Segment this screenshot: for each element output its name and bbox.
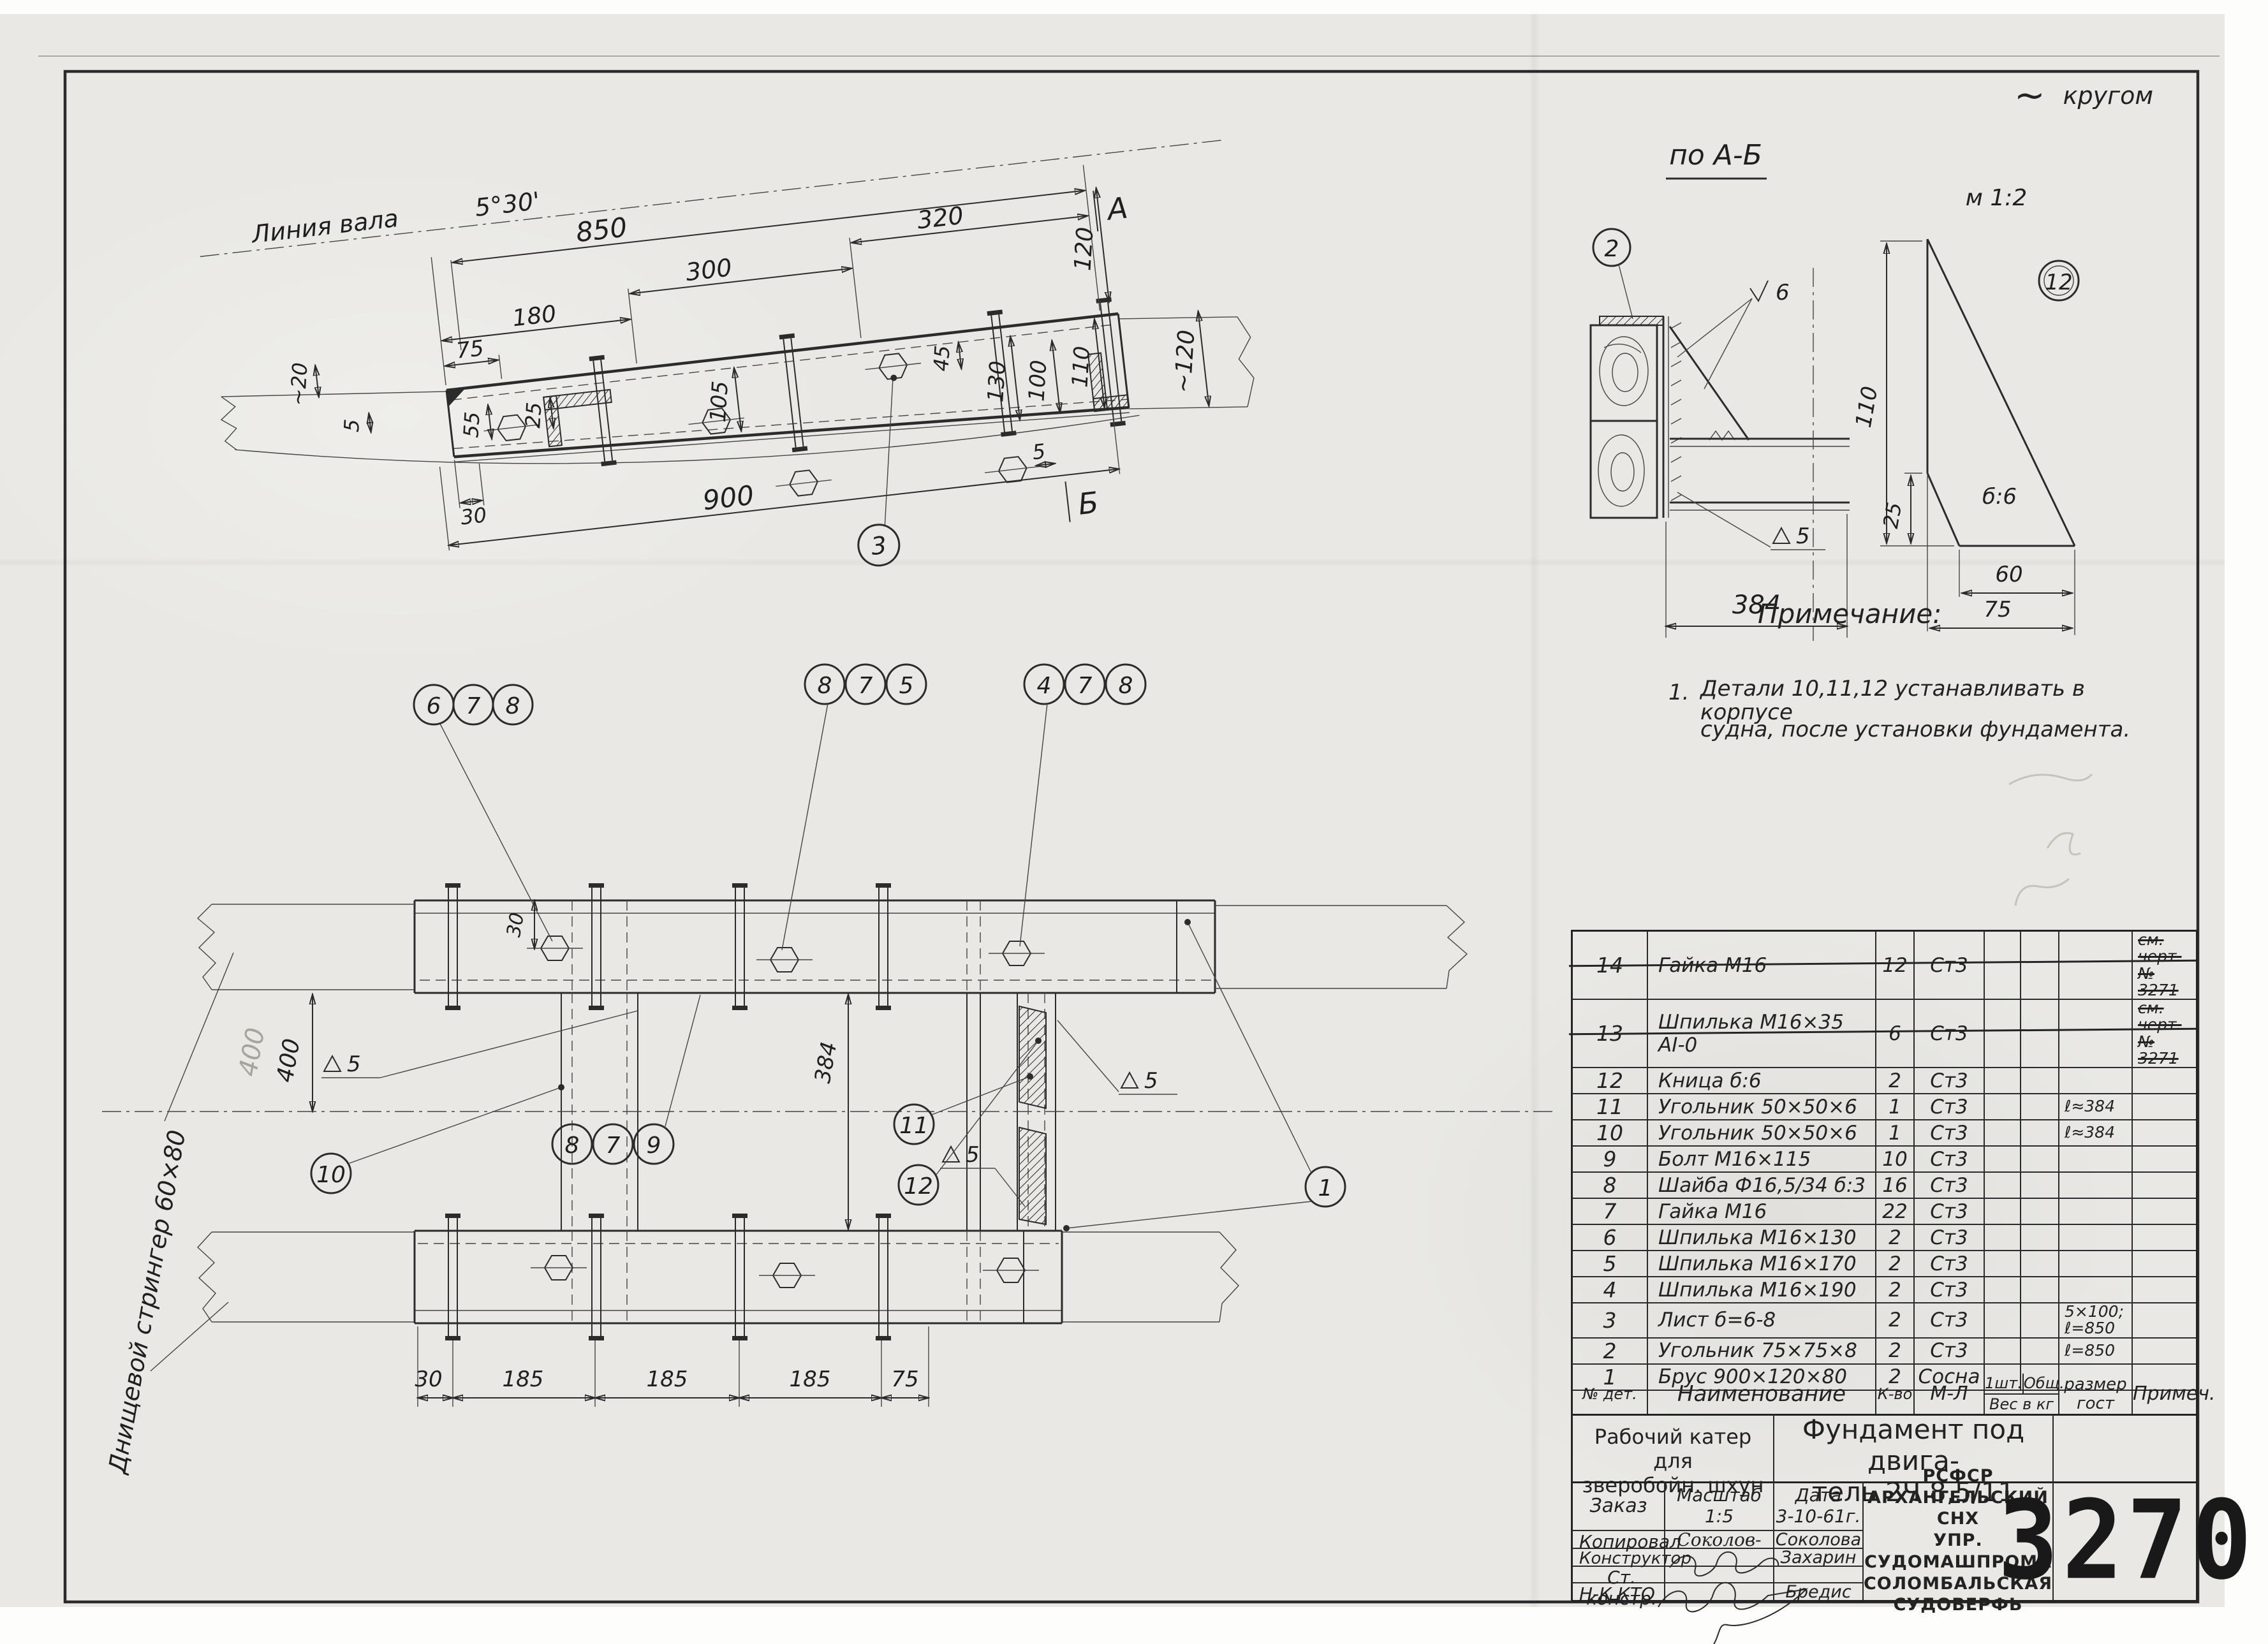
part-qty: 2 — [1876, 1277, 1915, 1302]
table-row: 14Гайка М1612Ст3см. черт.№ 3271 — [1573, 932, 2196, 1000]
balloon-trio-879: 8 7 9 — [552, 995, 700, 1164]
part-material: Ст3 — [1915, 1094, 1985, 1119]
note-number: 1. — [1668, 681, 1689, 705]
part-note — [2133, 1094, 2196, 1119]
svg-text:60: 60 — [1995, 562, 2022, 587]
svg-text:10: 10 — [316, 1162, 346, 1188]
part-name: Болт М16×115 — [1648, 1147, 1876, 1171]
svg-text:9: 9 — [647, 1133, 661, 1159]
stud — [589, 883, 604, 1010]
svg-text:120: 120 — [1070, 226, 1098, 272]
part-weight-each — [1985, 1199, 2021, 1224]
col-num: № дет. — [1573, 1374, 1648, 1414]
part-material: Ст3 — [1915, 1339, 1985, 1363]
table-row: 10Угольник 50×50×61Ст3ℓ≈384 — [1573, 1120, 2196, 1147]
table-row: 6Шпилька М16×1302Ст3 — [1573, 1225, 2196, 1251]
dim-900: 900 — [701, 480, 755, 517]
part-weight-total — [2021, 1277, 2059, 1302]
part-qty: 2 — [1876, 1225, 1915, 1250]
parts-table-header: № дет. Наименование К-во М-Л 1шт. Общ. В… — [1573, 1374, 2196, 1416]
thickness-label: б:6 — [1982, 484, 2017, 510]
part-num: 8 — [1573, 1173, 1648, 1198]
part-note — [2133, 1068, 2196, 1093]
part-name: Шпилька М16×190 — [1648, 1277, 1876, 1302]
svg-text:5: 5 — [966, 1142, 980, 1168]
weld-mark-d5: 5 — [1057, 1020, 1177, 1094]
svg-text:850: 850 — [574, 211, 628, 248]
order-label: Заказ — [1573, 1481, 1665, 1531]
dim-384: 384 — [810, 1040, 843, 1085]
weld-all-around-note: ~кругом — [2014, 75, 2153, 116]
dims-vertical: 120 ~120 110 100 130 45 105 25 55 ~20 5 — [272, 178, 1209, 510]
balloon-trio-678: 6 7 8 — [414, 685, 552, 941]
part-material: Ст3 — [1915, 1225, 1985, 1250]
sig-label: Ст. констр. — [1573, 1567, 1665, 1583]
svg-text:8: 8 — [1119, 673, 1133, 699]
part-size — [2059, 1147, 2133, 1171]
part-size — [2059, 932, 2133, 999]
part-weight-total — [2021, 1120, 2059, 1145]
part-num: 5 — [1573, 1251, 1648, 1276]
pencil-scribble — [2009, 774, 2092, 784]
svg-text:110: 110 — [1067, 346, 1095, 388]
part-material: Ст3 — [1915, 1251, 1985, 1276]
scale-cell: Масштаб 1:5 — [1665, 1481, 1774, 1531]
weld-mark-d5: 5 — [321, 1011, 638, 1078]
date-cell: Дата 3-10-61г. — [1774, 1481, 1864, 1531]
knee-bracket — [1019, 1006, 1046, 1108]
sig-name: Захарин — [1774, 1549, 1864, 1567]
part-name: Лист б=6-8 — [1648, 1303, 1876, 1337]
part-material: Ст3 — [1915, 1120, 1985, 1145]
svg-text:45: 45 — [929, 344, 954, 372]
svg-text:25: 25 — [520, 401, 546, 429]
part-size — [2059, 1225, 2133, 1250]
part-size: ℓ≈384 — [2059, 1094, 2133, 1119]
part-num: 11 — [1573, 1094, 1648, 1119]
svg-text:55: 55 — [459, 411, 484, 438]
detail-scale: м 1:2 — [1966, 185, 2028, 211]
part-name: Кница б:6 — [1648, 1068, 1876, 1093]
tilde-symbol: ~ — [2014, 73, 2045, 117]
part-size — [2059, 1277, 2133, 1302]
balloon-11: 11 — [894, 1073, 1033, 1144]
break-zigzag-right — [1234, 316, 1258, 407]
part-material: Ст3 — [1915, 1068, 1985, 1093]
part-weight-each — [1985, 1339, 2021, 1363]
part-note — [2133, 1173, 2196, 1198]
shaft-angle: 5°30' — [473, 187, 541, 222]
col-weight-total: Общ. — [2024, 1374, 2065, 1393]
svg-text:5: 5 — [339, 418, 364, 433]
dim-400: 400 — [272, 1037, 306, 1085]
part-weight-each — [1985, 1094, 2021, 1119]
svg-text:8: 8 — [818, 673, 832, 699]
part-qty: 16 — [1876, 1173, 1915, 1198]
part-material: Ст3 — [1915, 1000, 1985, 1067]
svg-text:4: 4 — [1037, 673, 1052, 699]
part-qty: 1 — [1876, 1120, 1915, 1145]
part-weight-total — [2021, 1339, 2059, 1363]
part-note — [2133, 1251, 2196, 1276]
svg-text:30: 30 — [503, 911, 529, 939]
dim-400-pencil: 400 — [233, 1025, 271, 1078]
stud — [445, 1214, 460, 1340]
table-row: 4Шпилька М16×1902Ст3 — [1573, 1277, 2196, 1303]
part-weight-total — [2021, 1000, 2059, 1067]
sig-signature — [1665, 1583, 1774, 1600]
part-name: Угольник 50×50×6 — [1648, 1120, 1876, 1145]
part-num: 9 — [1573, 1147, 1648, 1171]
svg-text:7: 7 — [858, 673, 873, 699]
sig-label: Н-К КТО — [1573, 1583, 1665, 1600]
break-zigzag-left — [219, 395, 240, 451]
svg-text:8: 8 — [506, 693, 520, 719]
part-size — [2059, 1000, 2133, 1067]
detail-12: м 1:2 12 110 25 60 75 б:6 — [1851, 185, 2079, 635]
parts-table: 14Гайка М1612Ст3см. черт.№ 327113Шпилька… — [1571, 930, 2198, 1602]
section-marker-a: A — [1104, 190, 1130, 227]
part-qty: 12 — [1876, 932, 1915, 999]
part-note — [2133, 1225, 2196, 1250]
part-num: 7 — [1573, 1199, 1648, 1224]
part-size — [2059, 1068, 2133, 1093]
balloon-1: 1 — [1063, 919, 1345, 1231]
sig-name: Соколова — [1774, 1531, 1864, 1549]
part-name: Гайка М16 — [1648, 932, 1876, 999]
col-name: Наименование — [1648, 1374, 1876, 1414]
col-weight-label: Вес в кг — [1989, 1395, 2054, 1414]
table-row: 7Гайка М1622Ст3 — [1573, 1199, 2196, 1225]
col-weight: 1шт. Общ. Вес в кг — [1985, 1374, 2059, 1414]
sig-name — [1774, 1567, 1864, 1583]
part-qty: 2 — [1876, 1339, 1915, 1363]
part-qty: 10 — [1876, 1147, 1915, 1171]
part-weight-each — [1985, 1068, 2021, 1093]
part-weight-each — [1985, 1303, 2021, 1337]
stud — [589, 1214, 604, 1340]
stud — [445, 883, 460, 1010]
svg-text:12: 12 — [904, 1173, 933, 1200]
chamfer — [446, 388, 468, 407]
part-material: Ст3 — [1915, 1173, 1985, 1198]
svg-text:300: 300 — [684, 253, 733, 286]
part-num: 12 — [1573, 1068, 1648, 1093]
table-row: 2Угольник 75×75×82Ст3ℓ=850 — [1573, 1339, 2196, 1365]
part-qty: 6 — [1876, 1000, 1915, 1067]
part-size: ℓ≈384 — [2059, 1120, 2133, 1145]
sig-label: Конструктор — [1573, 1549, 1665, 1567]
part-size: ℓ=850 — [2059, 1339, 2133, 1363]
sig-name: Бредис — [1774, 1583, 1864, 1600]
part-num: 6 — [1573, 1225, 1648, 1250]
part-note: см. черт.№ 3271 — [2133, 932, 2196, 999]
stud — [876, 1214, 891, 1340]
stud — [732, 883, 747, 1010]
svg-text:11: 11 — [899, 1113, 929, 1139]
svg-text:2: 2 — [1605, 236, 1619, 262]
section-marker-b: Б — [1077, 485, 1100, 522]
part-num: 3 — [1573, 1303, 1648, 1337]
hex-nut — [756, 948, 813, 972]
svg-text:130: 130 — [983, 360, 1011, 403]
table-row: 13Шпилька М16×35 АI-06Ст3см. черт.№ 3271 — [1573, 1000, 2196, 1068]
balloon-trio-875: 8 7 5 — [782, 664, 926, 950]
balloon-10: 10 — [311, 1084, 564, 1193]
hex-nut — [774, 468, 833, 499]
part-weight-each — [1985, 1173, 2021, 1198]
part-material: Ст3 — [1915, 1303, 1985, 1337]
part-note — [2133, 1339, 2196, 1363]
stringer-label: Днищевой стрингер 60×80 — [103, 1128, 191, 1477]
part-name: Шайба Ф16,5/34 б:3 — [1648, 1173, 1876, 1198]
part-note — [2133, 1199, 2196, 1224]
sig-signature — [1665, 1549, 1774, 1567]
svg-text:75: 75 — [1984, 597, 2011, 622]
svg-text:75: 75 — [891, 1367, 918, 1392]
part-weight-each — [1985, 1225, 2021, 1250]
part-size — [2059, 1199, 2133, 1224]
title-row: Рабочий катер для зверобойн. шхун Фундам… — [1573, 1414, 2196, 1483]
part-weight-total — [2021, 1068, 2059, 1093]
part-num: 13 — [1573, 1000, 1648, 1067]
svg-text:5: 5 — [347, 1052, 361, 1077]
stud — [876, 883, 891, 1010]
svg-text:~20: ~20 — [286, 362, 313, 406]
svg-text:100: 100 — [1024, 359, 1052, 402]
svg-text:185: 185 — [790, 1367, 831, 1392]
svg-text:30: 30 — [415, 1367, 442, 1392]
section-title: по А-Б — [1669, 139, 1762, 172]
break-zigzag — [1219, 1232, 1239, 1322]
part-weight-each — [1985, 1147, 2021, 1171]
title-block: Заказ Масштаб 1:5 Дата 3-10-61г. Копиров… — [1573, 1481, 2196, 1600]
all-around-label: кругом — [2063, 82, 2153, 110]
side-view: Линия вала 5°30' 75 180 300 320 850 A 12… — [196, 108, 1271, 638]
part-name: Шпилька М16×170 — [1648, 1251, 1876, 1276]
svg-text:320: 320 — [916, 202, 965, 235]
part-name: Шпилька М16×130 — [1648, 1225, 1876, 1250]
part-weight-total — [2021, 1094, 2059, 1119]
part-num: 2 — [1573, 1339, 1648, 1363]
part-note: см. черт.№ 3271 — [2133, 1000, 2196, 1067]
svg-text:185: 185 — [503, 1367, 544, 1392]
weld-mark-v6 — [1750, 281, 1768, 301]
note-line: судна, после установки фундамента. — [1700, 718, 2130, 742]
part-material: Ст3 — [1915, 932, 1985, 999]
col-material: М-Л — [1915, 1374, 1985, 1414]
break-zigzag — [198, 1232, 216, 1322]
svg-text:7: 7 — [1078, 673, 1093, 699]
part-qty: 22 — [1876, 1199, 1915, 1224]
drawing-number-cell: 3270 — [2054, 1481, 2200, 1600]
dim-30: 30 — [459, 503, 488, 529]
svg-text:7: 7 — [606, 1133, 621, 1159]
sig-signature — [1665, 1567, 1774, 1583]
svg-text:8: 8 — [565, 1133, 580, 1159]
hex-nut — [531, 1256, 587, 1280]
part-weight-each — [1985, 1000, 2021, 1067]
timber-block — [1591, 325, 1657, 421]
part-weight-each — [1985, 1120, 2021, 1145]
svg-text:5: 5 — [1796, 524, 1810, 549]
dim-5: 5 — [1031, 439, 1047, 464]
break-zigzag — [198, 904, 216, 990]
top-plate — [1600, 316, 1663, 325]
plan-view: 30 400 400 384 30 185 185 185 75 5 5 — [102, 664, 1556, 1477]
svg-text:105: 105 — [705, 380, 733, 423]
svg-text:110: 110 — [1851, 385, 1883, 430]
part-num: 4 — [1573, 1277, 1648, 1302]
hex-nut — [759, 1263, 815, 1288]
col-note: Примеч. — [2133, 1374, 2215, 1414]
svg-text:75: 75 — [455, 335, 485, 364]
part-qty: 2 — [1876, 1068, 1915, 1093]
weld-mark-d5 — [1773, 528, 1790, 543]
part-qty: 2 — [1876, 1251, 1915, 1276]
part-note — [2133, 1277, 2196, 1302]
svg-text:6: 6 — [1776, 280, 1790, 305]
svg-text:7: 7 — [466, 693, 481, 719]
part-weight-total — [2021, 1147, 2059, 1171]
sig-signature: Соколов- — [1665, 1531, 1774, 1549]
col-qty: К-во — [1876, 1374, 1915, 1414]
part-material: Ст3 — [1915, 1147, 1985, 1171]
svg-text:185: 185 — [647, 1367, 688, 1392]
part-name: Угольник 75×75×8 — [1648, 1339, 1876, 1363]
part-material: Ст3 — [1915, 1277, 1985, 1302]
part-weight-each — [1985, 1277, 2021, 1302]
part-qty: 1 — [1876, 1094, 1915, 1119]
table-row: 12Кница б:62Ст3 — [1573, 1068, 2196, 1094]
col-size: размер гост — [2059, 1374, 2133, 1414]
drawing-number: 3270 — [1998, 1478, 2256, 1604]
part-size — [2059, 1173, 2133, 1198]
part-weight-total — [2021, 1173, 2059, 1198]
part-name: Гайка М16 — [1648, 1199, 1876, 1224]
part-num: 10 — [1573, 1120, 1648, 1145]
parts-rows: 14Гайка М1612Ст3см. черт.№ 327113Шпилька… — [1573, 932, 2196, 1374]
svg-text:5: 5 — [1144, 1068, 1158, 1094]
part-note — [2133, 1147, 2196, 1171]
svg-text:1: 1 — [1318, 1175, 1333, 1201]
svg-text:~120: ~120 — [1170, 329, 1200, 393]
svg-text:3: 3 — [869, 531, 888, 561]
part-note — [2133, 1303, 2196, 1337]
hex-nut — [527, 936, 583, 960]
balloon-trio-478: 4 7 8 — [1020, 664, 1145, 946]
table-row: 11Угольник 50×50×61Ст3ℓ≈384 — [1573, 1094, 2196, 1120]
notes-heading: Примечание: — [1758, 599, 1941, 629]
sig-label: Копировал — [1573, 1531, 1665, 1549]
hex-nut — [989, 941, 1045, 965]
shaft-line-label: Линия вала — [249, 204, 399, 249]
svg-text:12: 12 — [2045, 270, 2072, 295]
stud — [732, 1214, 747, 1340]
svg-text:180: 180 — [511, 301, 557, 332]
part-size: 5×100;ℓ=850 — [2059, 1303, 2133, 1337]
part-weight-total — [2021, 1251, 2059, 1276]
svg-text:6: 6 — [427, 693, 441, 719]
part-size — [2059, 1251, 2133, 1276]
hex-nut — [983, 1258, 1039, 1282]
part-weight-total — [2021, 1225, 2059, 1250]
part-weight-total — [2021, 932, 2059, 999]
part-name: Шпилька М16×35 АI-0 — [1648, 1000, 1876, 1067]
part-qty: 2 — [1876, 1303, 1915, 1337]
knee-bracket — [1019, 1127, 1046, 1224]
pencil-scribble — [2015, 879, 2069, 906]
part-material: Ст3 — [1915, 1199, 1985, 1224]
section-ab: по А-Б 2 6 5 384 — [1591, 139, 1850, 641]
scanned-blueprint: { "doc_number": "3270", "annotations": {… — [0, 0, 2268, 1644]
part-num: 14 — [1573, 932, 1648, 999]
svg-text:5: 5 — [899, 673, 914, 699]
svg-text:25: 25 — [1878, 501, 1906, 531]
part-name: Угольник 50×50×6 — [1648, 1094, 1876, 1119]
part-weight-total — [2021, 1199, 2059, 1224]
table-row: 5Шпилька М16×1702Ст3 — [1573, 1251, 2196, 1277]
table-row: 3Лист б=6-82Ст35×100;ℓ=850 — [1573, 1303, 2196, 1339]
part-note — [2133, 1120, 2196, 1145]
break-zigzag — [1447, 906, 1467, 988]
table-row: 8Шайба Ф16,5/34 б:316Ст3 — [1573, 1173, 2196, 1199]
pencil-scribble — [2047, 833, 2080, 855]
weld-mark-d5: 5 — [940, 1142, 1025, 1207]
part-weight-each — [1985, 932, 2021, 999]
part-weight-total — [2021, 1303, 2059, 1337]
col-weight-each: 1шт. — [1985, 1374, 2024, 1393]
part-weight-each — [1985, 1251, 2021, 1276]
table-row: 9Болт М16×11510Ст3 — [1573, 1147, 2196, 1173]
